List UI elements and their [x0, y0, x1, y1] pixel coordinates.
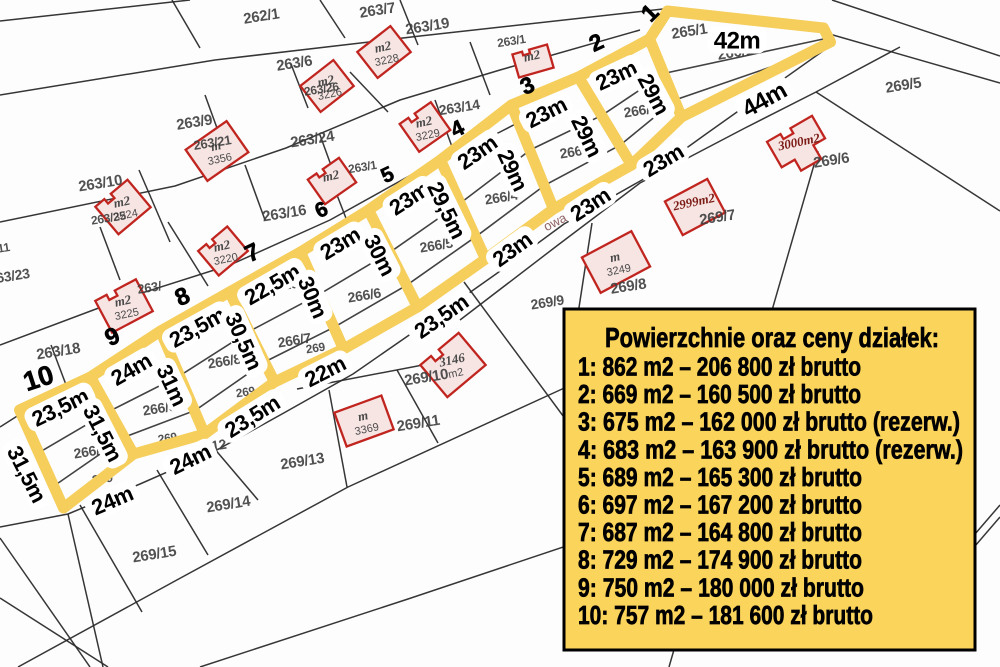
- svg-text:7: 687 m2 – 164 800 zł brutto: 7: 687 m2 – 164 800 zł brutto: [578, 519, 862, 547]
- svg-text:3: 675 m2 – 162 000 zł brutto: 3: 675 m2 – 162 000 zł brutto (rezerw.): [578, 409, 960, 437]
- svg-text:6: 697 m2 – 167 200 zł brutto: 6: 697 m2 – 167 200 zł brutto: [578, 492, 862, 520]
- svg-text:42m: 42m: [714, 28, 761, 55]
- svg-text:8: 729 m2 – 174 900 zł brutto: 8: 729 m2 – 174 900 zł brutto: [578, 547, 862, 575]
- svg-text:9: 750 m2 – 180 000 zł brutto: 9: 750 m2 – 180 000 zł brutto: [578, 574, 864, 602]
- svg-text:5: 689 m2 – 165 300 zł brutto: 5: 689 m2 – 165 300 zł brutto: [578, 464, 862, 492]
- svg-text:4: 683 m2 – 163 900 zł brutto: 4: 683 m2 – 163 900 zł brutto (rezerw.): [578, 436, 963, 464]
- svg-text:Powierzchnie oraz ceny działek: Powierzchnie oraz ceny działek:: [605, 322, 939, 353]
- svg-text:10: 757 m2 – 181 600 zł brutto: 10: 757 m2 – 181 600 zł brutto: [578, 602, 873, 630]
- svg-text:1: 862 m2 – 206 800 zł brutto: 1: 862 m2 – 206 800 zł brutto: [578, 354, 861, 382]
- svg-text:2: 669 m2 – 160 500 zł brutto: 2: 669 m2 – 160 500 zł brutto: [578, 381, 861, 409]
